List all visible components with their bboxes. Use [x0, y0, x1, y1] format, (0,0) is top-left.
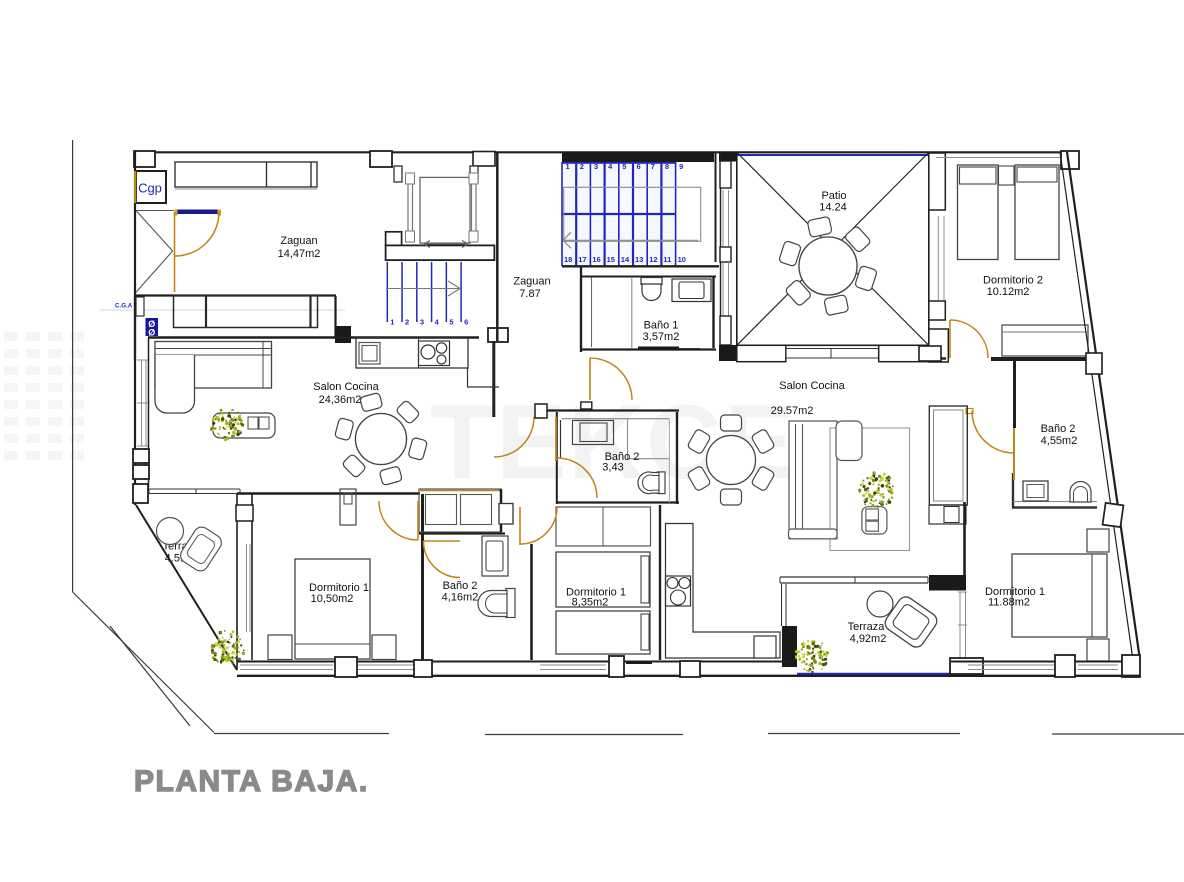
svg-text:10.12m2: 10.12m2	[987, 286, 1030, 298]
svg-text:Ø: Ø	[148, 328, 155, 338]
svg-text:4,92m2: 4,92m2	[850, 633, 887, 645]
svg-text:Dormitorio 2: Dormitorio 2	[983, 275, 1043, 287]
svg-text:6: 6	[637, 162, 641, 171]
svg-text:13: 13	[635, 255, 643, 264]
svg-text:17: 17	[578, 255, 586, 264]
svg-text:PLANTA BAJA.: PLANTA BAJA.	[134, 765, 369, 798]
svg-text:Zaguan: Zaguan	[513, 276, 550, 288]
svg-text:4,55m2: 4,55m2	[1041, 435, 1078, 447]
svg-text:3,43: 3,43	[602, 461, 623, 473]
svg-text:Baño 1: Baño 1	[644, 320, 679, 332]
svg-text:2: 2	[580, 162, 584, 171]
svg-text:3,57m2: 3,57m2	[643, 331, 680, 343]
svg-text:8: 8	[665, 162, 669, 171]
svg-text:14.24: 14.24	[819, 202, 847, 214]
svg-text:9: 9	[679, 162, 683, 171]
svg-text:2: 2	[405, 318, 409, 327]
svg-text:Cgp: Cgp	[138, 181, 162, 196]
svg-text:C.G.A: C.G.A	[115, 303, 133, 310]
svg-text:1: 1	[566, 162, 570, 171]
svg-text:Zaguan: Zaguan	[280, 235, 317, 247]
svg-text:24,36m2: 24,36m2	[319, 394, 362, 406]
svg-text:Baño 2: Baño 2	[443, 580, 478, 592]
svg-text:Baño 2: Baño 2	[1041, 423, 1076, 435]
svg-text:10: 10	[678, 255, 686, 264]
svg-text:14: 14	[621, 255, 630, 264]
svg-text:11.88m2: 11.88m2	[988, 597, 1030, 609]
svg-text:7: 7	[651, 162, 655, 171]
svg-text:29.57m2: 29.57m2	[771, 405, 814, 417]
svg-text:5: 5	[622, 162, 626, 171]
svg-text:8,35m2: 8,35m2	[572, 597, 609, 609]
svg-text:4,16m2: 4,16m2	[442, 592, 479, 604]
svg-text:7.87: 7.87	[519, 288, 540, 300]
svg-text:1: 1	[390, 318, 394, 327]
svg-text:6: 6	[464, 318, 468, 327]
svg-text:Patio: Patio	[821, 190, 846, 202]
svg-text:15: 15	[607, 255, 615, 264]
svg-text:10,50m2: 10,50m2	[311, 593, 354, 605]
svg-text:5: 5	[449, 318, 453, 327]
svg-text:Salon Cocina: Salon Cocina	[313, 381, 379, 393]
svg-text:Salon Cocina: Salon Cocina	[779, 380, 845, 392]
svg-text:11: 11	[663, 255, 671, 264]
svg-text:Terraza: Terraza	[848, 621, 886, 633]
svg-text:3: 3	[594, 162, 598, 171]
svg-text:3: 3	[420, 318, 424, 327]
svg-text:18: 18	[564, 255, 572, 264]
svg-text:12: 12	[649, 255, 657, 264]
svg-text:16: 16	[592, 255, 600, 264]
svg-text:14,47m2: 14,47m2	[278, 248, 321, 260]
